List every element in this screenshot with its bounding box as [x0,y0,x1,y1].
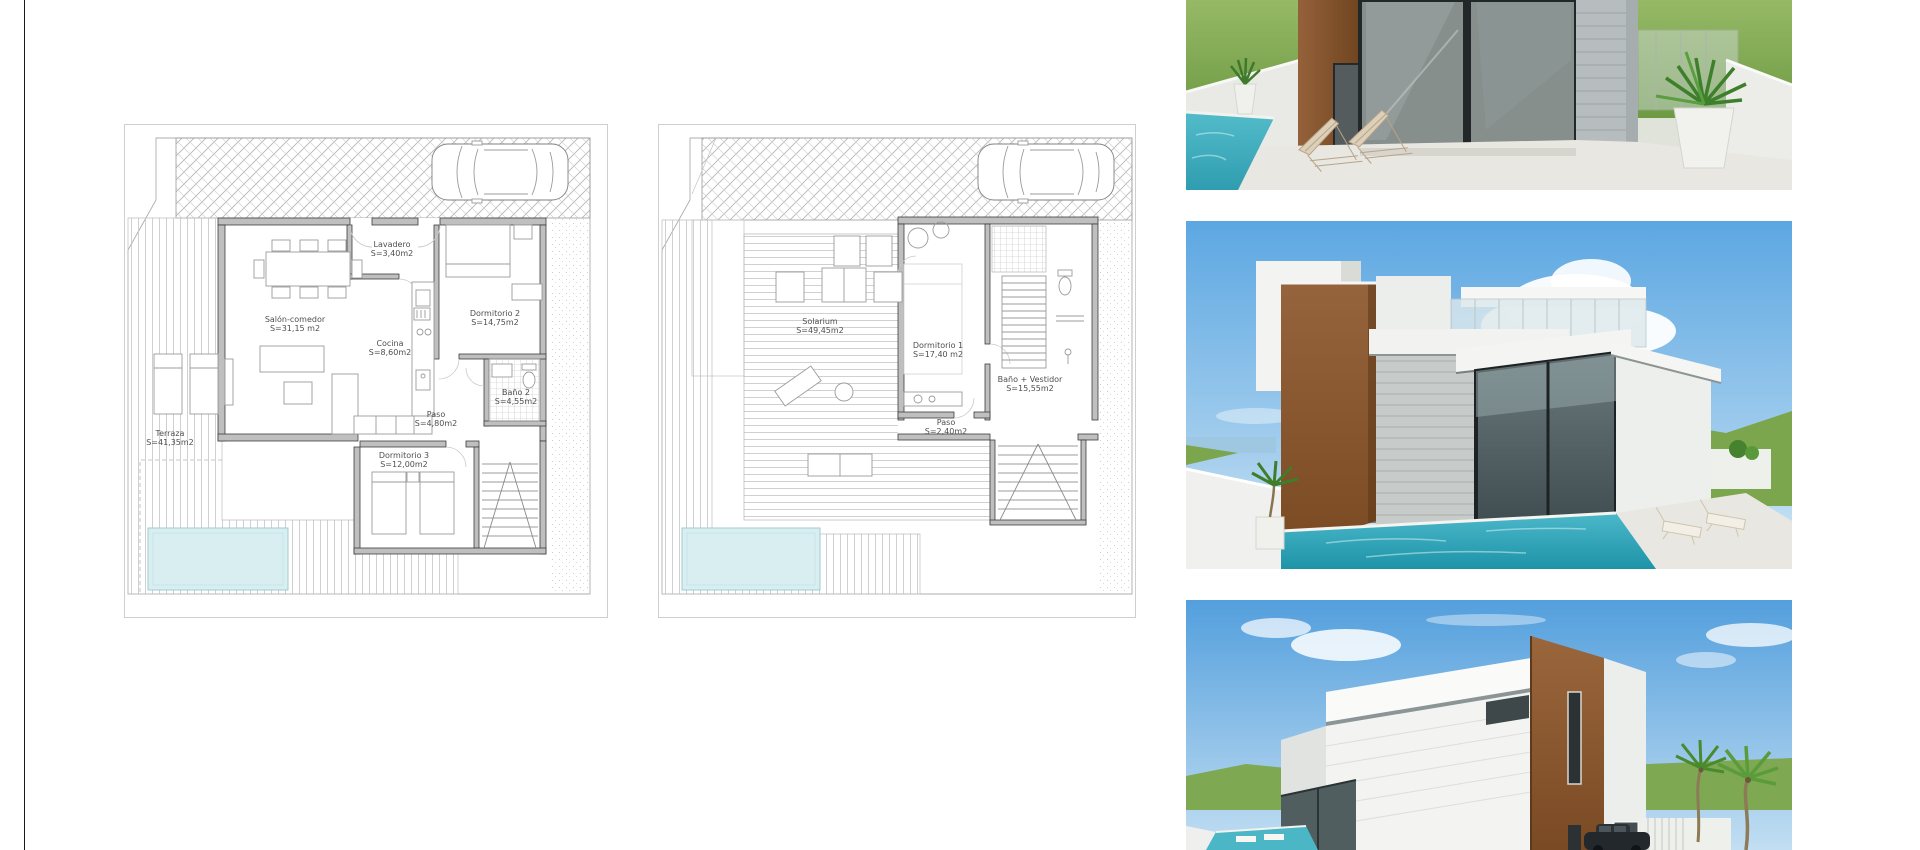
side-yard-gravel [1098,220,1132,594]
room-label-dormitorio1: Dormitorio 1 [913,341,963,350]
villa-street-corner-render [1186,600,1792,850]
sheet-frame-left-border [24,0,25,850]
room-area-salon-comedor: S=31,15 m2 [270,324,320,333]
ground-floor-plan: Salón-comedor S=31,15 m2 Lavadero S=3,40… [124,124,608,618]
room-label-solarium: Solarium [802,317,838,326]
room-label-bano2: Baño 2 [502,388,530,397]
first-floor-plan: Solarium S=49,45m2 Dormitorio 1 S=17,40 … [658,124,1136,618]
room-label-dormitorio2: Dormitorio 2 [470,309,520,318]
room-area-dormitorio2: S=14,75m2 [471,318,519,327]
room-label-dormitorio3: Dormitorio 3 [379,451,429,460]
room-area-lavadero: S=3,40m2 [371,249,413,258]
room-area-dormitorio3: S=12,00m2 [380,460,428,469]
room-area-paso: S=2,40m2 [925,427,967,436]
concrete-pillar [1576,0,1638,142]
boundary-wall-gate [1641,818,1731,850]
room-label-terraza: Terraza [155,429,185,438]
terrace-pool-render [1186,0,1792,190]
villa-pool-aerial-render [1186,221,1792,569]
car-icon [978,141,1114,203]
stairs [998,444,1078,520]
room-area-bano-vestidor: S=15,55m2 [1006,384,1054,393]
car-icon [432,141,568,203]
glass-balustrade [1638,30,1738,110]
side-yard-gravel [550,218,590,594]
room-area-dormitorio1: S=17,40 m2 [913,350,963,359]
room-area-paso: S=4,80m2 [415,419,457,428]
room-label-salon-comedor: Salón-comedor [265,314,326,324]
sheet-page: Salón-comedor S=31,15 m2 Lavadero S=3,40… [0,0,1920,850]
room-area-cocina: S=8,60m2 [369,348,411,357]
room-area-bano2: S=4,55m2 [495,397,537,406]
pool [148,528,288,590]
room-label-bano-vestidor: Baño + Vestidor [998,375,1063,384]
room-area-solarium: S=49,45m2 [796,326,844,335]
corten-tower [1531,636,1604,850]
room-label-cocina: Cocina [376,339,403,348]
right-wing [1604,658,1646,850]
room-label-paso: Paso [937,418,956,427]
glass-sliding-doors [1360,0,1576,148]
room-label-lavadero: Lavadero [373,240,410,249]
pool [682,528,820,590]
corten-tower [1281,283,1376,551]
room-label-paso: Paso [427,410,446,419]
room-area-terraza: S=41,35m2 [146,438,194,447]
